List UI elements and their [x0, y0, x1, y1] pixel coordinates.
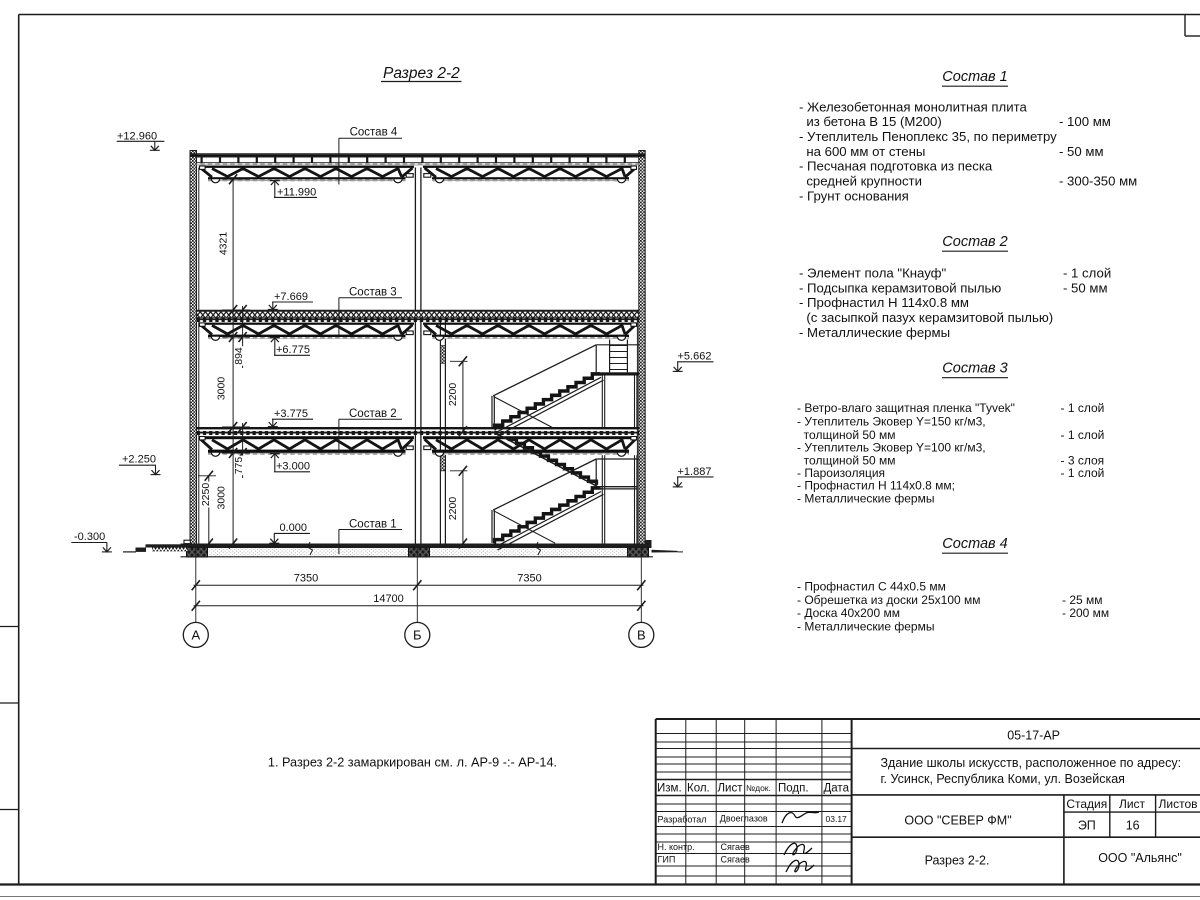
svg-text:2200: 2200: [447, 383, 459, 407]
svg-text:Лист: Лист: [718, 783, 744, 795]
svg-text:775: 775: [233, 457, 245, 475]
svg-text:Кол.: Кол.: [687, 783, 710, 795]
svg-text:Разработал: Разработал: [658, 815, 707, 825]
svg-text:Состав 2: Состав 2: [349, 408, 397, 420]
svg-text:- Профнастил Н 114х0.8 мм: - Профнастил Н 114х0.8 мм: [799, 295, 969, 310]
svg-text:(с засыпкой пазух керамзитовой: (с засыпкой пазух керамзитовой пылью): [799, 310, 1053, 325]
svg-text:1. Разрез 2-2 замаркирован см.: 1. Разрез 2-2 замаркирован см. л. АР-9 -…: [268, 756, 557, 770]
svg-text:Сягаев: Сягаев: [721, 842, 750, 852]
svg-text:- Профнастил С 44х0.5 мм: - Профнастил С 44х0.5 мм: [797, 580, 946, 594]
svg-text:Состав 3: Состав 3: [942, 361, 1007, 377]
svg-text:03.17: 03.17: [826, 814, 848, 824]
svg-text:из бетона В 15 (М200): из бетона В 15 (М200): [799, 114, 942, 129]
svg-text:на 600 мм от стены: на 600 мм от стены: [799, 144, 925, 159]
svg-text:Стадия: Стадия: [1066, 797, 1107, 811]
svg-text:+3.775: +3.775: [274, 408, 308, 420]
svg-text:- Профнастил Н 114х0.8 мм;: - Профнастил Н 114х0.8 мм;: [797, 479, 955, 493]
svg-text:Подп.: Подп.: [778, 783, 809, 795]
svg-text:- Подсыпка керамзитовой пылью: - Подсыпка керамзитовой пылью: [799, 280, 1001, 295]
svg-text:Дата: Дата: [824, 783, 850, 795]
svg-text:ЭП: ЭП: [1078, 819, 1096, 833]
svg-text:7350: 7350: [517, 573, 541, 585]
svg-text:Разрез 2-2.: Разрез 2-2.: [925, 854, 990, 868]
svg-text:+5.662: +5.662: [678, 351, 712, 363]
svg-text:Состав 4: Состав 4: [942, 536, 1007, 552]
svg-text:- Обрешетка из доски 25х100 мм: - Обрешетка из доски 25х100 мм: [797, 593, 981, 607]
svg-text:+7.669: +7.669: [274, 291, 308, 303]
svg-text:А: А: [191, 628, 200, 643]
svg-text:- 1 слой: - 1 слой: [1061, 466, 1105, 480]
svg-text:3000: 3000: [215, 377, 227, 401]
svg-text:05-17-АР: 05-17-АР: [1007, 729, 1060, 743]
svg-text:0.000: 0.000: [280, 522, 308, 534]
svg-text:7350: 7350: [294, 573, 318, 585]
svg-text:- Железобетонная монолитная п: - Железобетонная монолитная плита: [799, 99, 1028, 114]
svg-text:ГИП: ГИП: [658, 855, 676, 865]
svg-text:2200: 2200: [447, 497, 459, 521]
svg-text:- Ветро-влаго защитная пленка: - Ветро-влаго защитная пленка "Tyvek": [797, 401, 1015, 415]
svg-text:- Металлические фермы: - Металлические фермы: [797, 491, 934, 505]
svg-text:№док.: №док.: [746, 783, 771, 793]
svg-text:средней крупности: средней крупности: [799, 174, 922, 189]
svg-text:Здание школы искусств, располо: Здание школы искусств, расположенное по …: [881, 756, 1182, 770]
svg-text:- 200 мм: - 200 мм: [1062, 606, 1109, 620]
svg-text:894: 894: [233, 347, 245, 365]
svg-text:+11.990: +11.990: [277, 186, 316, 198]
svg-text:Изм.: Изм.: [657, 783, 682, 795]
svg-text:Н. контр.: Н. контр.: [658, 842, 695, 852]
svg-text:ООО "Альянс": ООО "Альянс": [1098, 851, 1182, 865]
svg-text:В: В: [637, 628, 646, 643]
svg-text:- 50 мм: - 50 мм: [1059, 144, 1104, 159]
svg-text:16: 16: [1126, 819, 1140, 833]
svg-text:- Элемент пола "Кнауф": - Элемент пола "Кнауф": [799, 266, 947, 281]
svg-text:Состав 1: Состав 1: [349, 518, 397, 530]
svg-text:ООО "СЕВЕР ФМ": ООО "СЕВЕР ФМ": [904, 814, 1011, 828]
svg-text:2250: 2250: [200, 483, 212, 507]
svg-text:Сягаев: Сягаев: [721, 855, 750, 865]
svg-text:- 1 слой: - 1 слой: [1061, 428, 1105, 442]
svg-text:- Грунт основания: - Грунт основания: [799, 188, 909, 203]
svg-text:- 300-350 мм: - 300-350 мм: [1059, 174, 1137, 189]
svg-text:- Утеплитель Эковер Y=150 кг/м: - Утеплитель Эковер Y=150 кг/м3,: [797, 414, 986, 428]
svg-text:- 25 мм: - 25 мм: [1062, 593, 1103, 607]
svg-text:Листов: Листов: [1159, 797, 1198, 811]
svg-text:- 1 слой: - 1 слой: [1061, 401, 1105, 415]
svg-text:Лист: Лист: [1119, 797, 1146, 811]
svg-text:- Утеплитель Пеноплекс 35, по: - Утеплитель Пеноплекс 35, по периметру: [799, 129, 1057, 144]
svg-text:- Утеплитель Эковер Y=100 кг/м: - Утеплитель Эковер Y=100 кг/м3,: [797, 440, 986, 454]
svg-text:Состав 2: Состав 2: [942, 234, 1007, 250]
svg-text:- 100 мм: - 100 мм: [1059, 114, 1111, 129]
svg-text:Состав 1: Состав 1: [942, 69, 1007, 85]
svg-text:Разрез 2-2: Разрез 2-2: [383, 65, 460, 82]
svg-text:- Песчаная подготовка из песка: - Песчаная подготовка из песка: [799, 159, 993, 174]
svg-text:- Металлические фермы: - Металлические фермы: [799, 325, 950, 340]
svg-text:-0.300: -0.300: [74, 531, 105, 543]
svg-text:+3.000: +3.000: [276, 461, 310, 473]
svg-text:Состав 3: Состав 3: [349, 287, 397, 299]
svg-text:Состав 4: Состав 4: [350, 127, 398, 139]
svg-text:г. Усинск, Республика Коми, ул: г. Усинск, Республика Коми, ул. Возейска…: [881, 772, 1125, 786]
svg-text:- Металлические фермы: - Металлические фермы: [797, 620, 934, 634]
svg-text:+6.775: +6.775: [276, 344, 310, 356]
svg-text:+2.250: +2.250: [122, 454, 156, 466]
svg-text:- 1 слой: - 1 слой: [1063, 266, 1111, 281]
svg-text:Б: Б: [413, 628, 422, 643]
svg-text:Двоеглазов: Двоеглазов: [720, 814, 768, 824]
svg-text:4321: 4321: [218, 232, 230, 256]
svg-text:- 50 мм: - 50 мм: [1063, 280, 1108, 295]
svg-text:- Доска 40х200 мм: - Доска 40х200 мм: [797, 606, 900, 620]
svg-text:3000: 3000: [215, 486, 227, 510]
svg-text:14700: 14700: [373, 593, 404, 605]
